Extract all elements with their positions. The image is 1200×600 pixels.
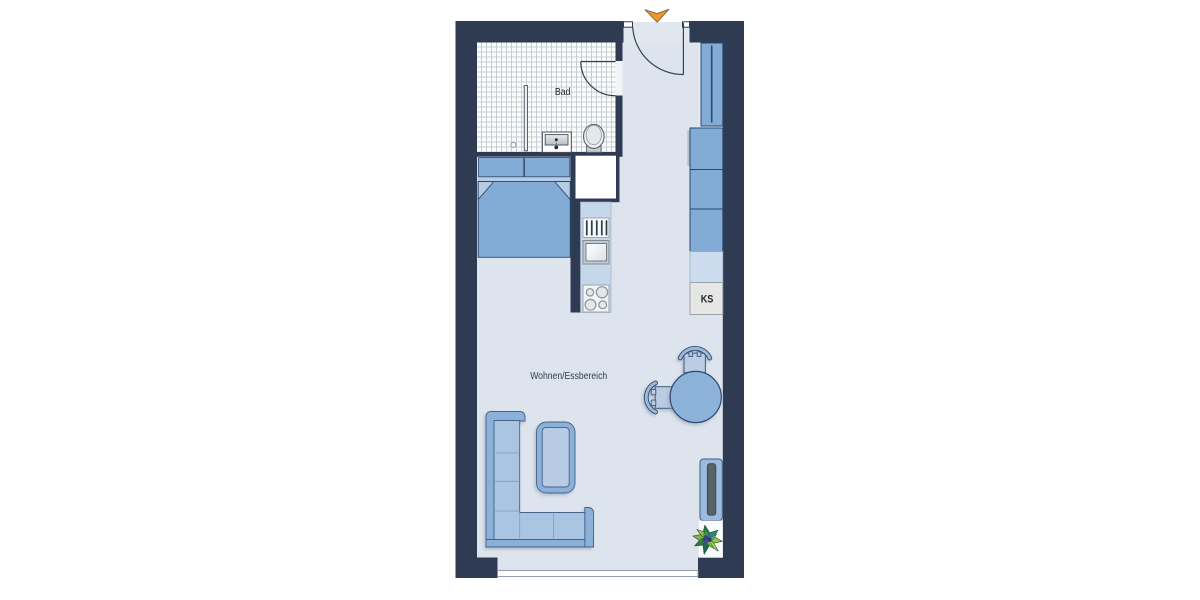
svg-text:KS: KS (701, 294, 714, 306)
svg-text:Wohnen/Essbereich: Wohnen/Essbereich (530, 371, 607, 382)
svg-text:Bad: Bad (555, 87, 571, 98)
